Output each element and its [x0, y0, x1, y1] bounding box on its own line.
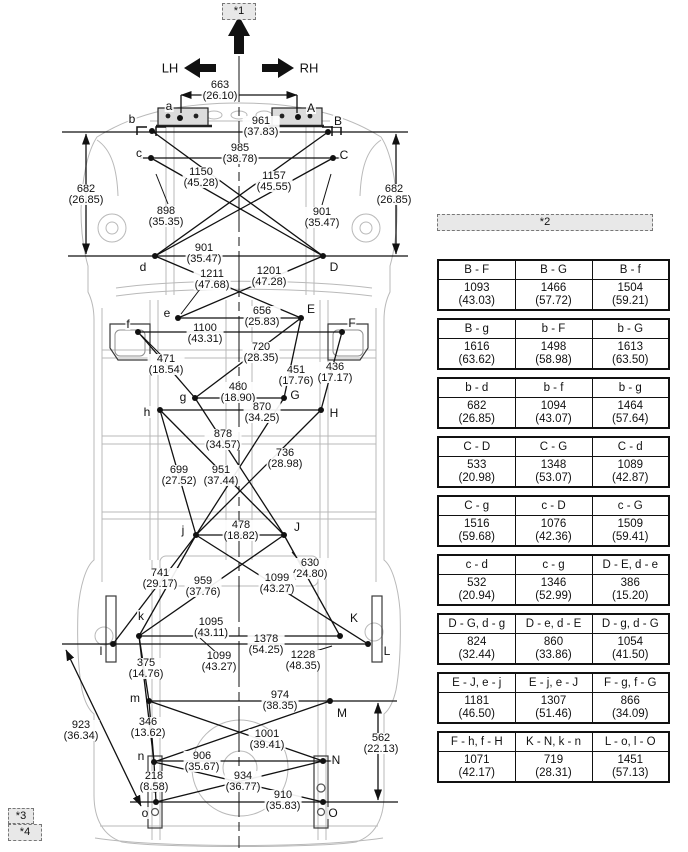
dim-mm: 346: [131, 717, 166, 728]
pair-value-mm: 1181: [439, 695, 515, 708]
point-label-f: f: [125, 318, 130, 330]
pair-header: C - D: [438, 437, 515, 457]
pair-table-block-8: E - J, e - jE - j, e - JF - g, f - G1181…: [437, 672, 670, 724]
dim-label-656: 656(25.83): [244, 306, 281, 327]
dim-inches: (28.35): [244, 353, 279, 364]
point-label-j: j: [181, 524, 186, 536]
pair-header: K - N, k - n: [515, 732, 592, 752]
dim-inches: (17.76): [279, 376, 314, 387]
point-label-D: D: [329, 261, 340, 273]
pair-header: F - h, f - H: [438, 732, 515, 752]
dim-label-934: 934(36.77): [225, 771, 262, 792]
pair-value: 682(26.85): [438, 398, 515, 429]
pair-table-block-3: b - db - fb - g682(26.85)1094(43.07)1464…: [437, 377, 670, 429]
dim-label-682-left: 682(26.85): [68, 184, 105, 205]
pair-value-inches: (20.98): [439, 472, 515, 485]
pair-header: C - d: [592, 437, 669, 457]
dim-mm: 562: [364, 733, 399, 744]
pair-value-mm: 1451: [593, 754, 669, 767]
point-label-A: A: [306, 102, 316, 114]
pair-header: L - o, l - O: [592, 732, 669, 752]
pair-table-block-9: F - h, f - HK - N, k - nL - o, l - O1071…: [437, 731, 670, 783]
dim-label-720: 720(28.35): [243, 342, 280, 363]
dim-label-471: 471(18.54): [148, 354, 185, 375]
pair-header: b - G: [592, 319, 669, 339]
pair-header: B - g: [438, 319, 515, 339]
dim-mm: 901: [187, 243, 222, 254]
pair-value-inches: (43.03): [439, 295, 515, 308]
pair-value: 1464(57.64): [592, 398, 669, 429]
dim-label-1378: 1378(54.25): [248, 634, 285, 655]
dim-label-736: 736(28.98): [267, 448, 304, 469]
pair-value: 533(20.98): [438, 457, 515, 488]
dim-inches: (43.11): [194, 628, 228, 639]
pair-value-inches: (26.85): [439, 413, 515, 426]
dim-label-741: 741(29.17): [142, 568, 179, 589]
pair-value-mm: 533: [439, 459, 515, 472]
reference-box-4: *4: [8, 824, 42, 841]
dim-inches: (14.76): [129, 669, 164, 680]
rh-label: RH: [300, 61, 319, 76]
pair-value-mm: 1076: [516, 518, 592, 531]
dim-mm: 471: [149, 354, 184, 365]
pair-value-mm: 1464: [593, 400, 669, 413]
pair-value: 1076(42.36): [515, 516, 592, 547]
pair-value: 1181(46.50): [438, 693, 515, 724]
dim-inches: (28.98): [268, 459, 303, 470]
pair-table-block-7: D - G, d - gD - e, d - ED - g, d - G824(…: [437, 613, 670, 665]
dim-label-562: 562(22.13): [363, 733, 400, 754]
pair-value: 1094(43.07): [515, 398, 592, 429]
pair-value-mm: 1498: [516, 341, 592, 354]
pair-header: E - j, e - J: [515, 673, 592, 693]
dim-label-1095: 1095(43.11): [193, 617, 229, 638]
dim-label-974: 974(38.35): [262, 690, 299, 711]
pair-value-mm: 1093: [439, 282, 515, 295]
pair-value: 866(34.09): [592, 693, 669, 724]
dim-inches: (38.78): [223, 154, 258, 165]
point-label-J: J: [293, 521, 301, 533]
dim-inches: (35.35): [149, 217, 184, 228]
pair-value-mm: 824: [439, 636, 515, 649]
point-label-a: a: [165, 100, 174, 112]
dim-mm: 1378: [249, 634, 284, 645]
dim-inches: (35.47): [187, 254, 222, 265]
pair-value-mm: 1089: [593, 459, 669, 472]
dim-inches: (24.80): [293, 569, 328, 580]
point-label-G: G: [289, 389, 300, 401]
dim-mm: 959: [186, 576, 221, 587]
pair-value: 1054(41.50): [592, 634, 669, 665]
point-label-l: l: [99, 645, 104, 657]
pair-value-inches: (28.31): [516, 767, 592, 780]
point-label-B: B: [333, 115, 343, 127]
dim-label-1228: 1228(48.35): [285, 650, 322, 671]
dim-mm: 630: [293, 558, 328, 569]
reference-box-1: *1: [222, 3, 256, 20]
dim-label-870: 870(34.25): [244, 402, 281, 423]
dim-mm: 870: [245, 402, 280, 413]
pair-value-mm: 1346: [516, 577, 592, 590]
dim-label-1201: 1201(47.28): [251, 266, 288, 287]
dim-inches: (37.83): [244, 127, 279, 138]
dim-inches: (27.52): [162, 476, 197, 487]
dim-label-1157: 1157(45.55): [256, 171, 293, 192]
dim-mm: 878: [206, 429, 241, 440]
pair-value-mm: 1504: [593, 282, 669, 295]
point-label-m: m: [129, 692, 141, 704]
dim-mm: 451: [279, 365, 314, 376]
dim-inches: (8.58): [140, 782, 169, 793]
dim-inches: (35.83): [266, 801, 301, 812]
pair-value-inches: (59.41): [593, 531, 669, 544]
pair-value: 1613(63.50): [592, 339, 669, 370]
dim-label-1150: 1150(45.28): [183, 167, 220, 188]
dim-inches: (43.27): [202, 662, 237, 673]
point-label-b: b: [128, 113, 137, 125]
pair-value: 1346(52.99): [515, 575, 592, 606]
pair-table-block-5: C - gc - Dc - G1516(59.68)1076(42.36)150…: [437, 495, 670, 547]
dim-mm: 1099: [260, 573, 295, 584]
pair-value-inches: (15.20): [593, 590, 669, 603]
dim-label-630: 630(24.80): [292, 558, 329, 579]
dim-inches: (34.57): [206, 440, 241, 451]
dim-label-961: 961(37.83): [243, 116, 280, 137]
dim-mm: 906: [185, 751, 220, 762]
pair-header: b - f: [515, 378, 592, 398]
dim-label-898: 898(35.35): [148, 206, 185, 227]
dim-mm: 682: [377, 184, 412, 195]
pair-value: 1509(59.41): [592, 516, 669, 547]
pair-value-inches: (57.72): [516, 295, 592, 308]
pair-header: c - D: [515, 496, 592, 516]
pair-value-inches: (32.44): [439, 649, 515, 662]
pair-header: c - g: [515, 555, 592, 575]
dim-label-218: 218(8.58): [139, 771, 170, 792]
dim-inches: (25.83): [245, 317, 280, 328]
dim-mm: 974: [263, 690, 298, 701]
point-label-H: H: [329, 407, 340, 419]
dim-label-1100: 1100(43.31): [187, 323, 224, 344]
pair-value-mm: 1613: [593, 341, 669, 354]
lh-label: LH: [162, 61, 179, 76]
dim-inches: (43.27): [260, 584, 295, 595]
point-label-d: d: [139, 261, 148, 273]
dim-mm: 1099: [202, 651, 237, 662]
dim-inches: (47.28): [252, 277, 287, 288]
pair-value-mm: 719: [516, 754, 592, 767]
dim-inches: (26.85): [69, 195, 104, 206]
dim-mm: 898: [149, 206, 184, 217]
dim-mm: 1100: [188, 323, 223, 334]
pair-value: 1504(59.21): [592, 280, 669, 311]
point-label-O: O: [327, 807, 338, 819]
point-label-C: C: [339, 149, 350, 161]
dim-inches: (36.34): [64, 731, 99, 742]
pair-value-inches: (57.64): [593, 413, 669, 426]
pair-value: 824(32.44): [438, 634, 515, 665]
pair-value-inches: (63.62): [439, 354, 515, 367]
dim-label-901-mid: 901(35.47): [186, 243, 223, 264]
pair-value-mm: 1307: [516, 695, 592, 708]
dim-mm: 682: [69, 184, 104, 195]
dim-inches: (26.85): [377, 195, 412, 206]
pair-value-inches: (41.50): [593, 649, 669, 662]
dim-label-480: 480(18.90): [220, 382, 257, 403]
point-label-n: n: [137, 750, 146, 762]
pair-value-inches: (63.50): [593, 354, 669, 367]
dim-mm: 985: [223, 143, 258, 154]
pair-table-block-4: C - DC - GC - d533(20.98)1348(53.07)1089…: [437, 436, 670, 488]
pair-header: b - d: [438, 378, 515, 398]
pair-value: 1616(63.62): [438, 339, 515, 370]
dim-mm: 1095: [194, 617, 228, 628]
pair-value-inches: (52.99): [516, 590, 592, 603]
pair-value-mm: 532: [439, 577, 515, 590]
dim-mm: 923: [64, 720, 99, 731]
pair-value-mm: 1071: [439, 754, 515, 767]
pair-header: b - g: [592, 378, 669, 398]
pair-value-inches: (59.21): [593, 295, 669, 308]
dim-inches: (34.25): [245, 413, 280, 424]
dim-inches: (45.55): [257, 182, 292, 193]
dim-mm: 1201: [252, 266, 287, 277]
dim-inches: (47.68): [195, 280, 230, 291]
dim-label-699: 699(27.52): [161, 465, 198, 486]
pair-value-inches: (43.07): [516, 413, 592, 426]
pair-table-block-6: c - dc - gD - E, d - e532(20.94)1346(52.…: [437, 554, 670, 606]
pair-table-block-2: B - gb - Fb - G1616(63.62)1498(58.98)161…: [437, 318, 670, 370]
point-label-K: K: [349, 612, 359, 624]
dim-mm: 436: [318, 362, 353, 373]
dim-label-923: 923(36.34): [63, 720, 100, 741]
dim-mm: 663: [203, 80, 238, 91]
dim-inches: (45.28): [184, 178, 219, 189]
dim-label-910: 910(35.83): [265, 790, 302, 811]
point-label-e: e: [163, 307, 172, 319]
dim-label-985: 985(38.78): [222, 143, 259, 164]
dim-mm: 1157: [257, 171, 292, 182]
pair-value: 1466(57.72): [515, 280, 592, 311]
dim-inches: (13.62): [131, 728, 166, 739]
pair-value-mm: 860: [516, 636, 592, 649]
pair-value: 1071(42.17): [438, 752, 515, 783]
point-label-h: h: [143, 406, 152, 418]
pair-value-inches: (57.13): [593, 767, 669, 780]
pair-value-inches: (20.94): [439, 590, 515, 603]
pair-header: c - G: [592, 496, 669, 516]
point-label-F: F: [347, 317, 356, 329]
pair-value-mm: 1509: [593, 518, 669, 531]
dimension-pair-table: B - FB - GB - f1093(43.03)1466(57.72)150…: [437, 259, 670, 790]
pair-value-inches: (51.46): [516, 708, 592, 721]
dim-inches: (54.25): [249, 645, 284, 656]
pair-header: C - g: [438, 496, 515, 516]
point-label-N: N: [331, 754, 342, 766]
dim-mm: 375: [129, 658, 164, 669]
dim-mm: 1211: [195, 269, 230, 280]
pair-value-inches: (53.07): [516, 472, 592, 485]
dim-label-901-right: 901(35.47): [304, 207, 341, 228]
pair-header: E - J, e - j: [438, 673, 515, 693]
pair-value-mm: 1616: [439, 341, 515, 354]
point-label-k: k: [137, 610, 145, 622]
dim-inches: (22.13): [364, 744, 399, 755]
pair-value: 386(15.20): [592, 575, 669, 606]
pair-header: D - G, d - g: [438, 614, 515, 634]
reference-box-2: *2: [437, 214, 653, 231]
dim-inches: (36.77): [226, 782, 261, 793]
dim-mm: 910: [266, 790, 301, 801]
dim-label-663: 663(26.10): [202, 80, 239, 101]
pair-header: F - g, f - G: [592, 673, 669, 693]
dim-inches: (17.17): [318, 373, 353, 384]
pair-value: 1516(59.68): [438, 516, 515, 547]
dim-mm: 901: [305, 207, 340, 218]
pair-value: 1451(57.13): [592, 752, 669, 783]
dim-inches: (26.10): [203, 91, 238, 102]
dim-mm: 741: [143, 568, 178, 579]
pair-value: 1089(42.87): [592, 457, 669, 488]
dim-inches: (18.82): [224, 531, 259, 542]
pair-value-inches: (59.68): [439, 531, 515, 544]
point-label-L: L: [383, 645, 392, 657]
pair-value-inches: (46.50): [439, 708, 515, 721]
pair-value-mm: 1466: [516, 282, 592, 295]
dim-inches: (37.76): [186, 587, 221, 598]
pair-value-mm: 682: [439, 400, 515, 413]
pair-header: C - G: [515, 437, 592, 457]
dim-label-878: 878(34.57): [205, 429, 242, 450]
reference-box-3: *3: [8, 808, 34, 824]
pair-value-inches: (34.09): [593, 708, 669, 721]
dim-label-906: 906(35.67): [184, 751, 221, 772]
dim-inches: (38.35): [263, 701, 298, 712]
dim-mm: 934: [226, 771, 261, 782]
dim-label-959: 959(37.76): [185, 576, 222, 597]
dim-inches: (18.54): [149, 365, 184, 376]
dim-mm: 478: [224, 520, 259, 531]
dim-inches: (35.67): [185, 762, 220, 773]
pair-value: 1348(53.07): [515, 457, 592, 488]
dim-mm: 736: [268, 448, 303, 459]
dim-inches: (37.44): [204, 476, 239, 487]
dim-label-478: 478(18.82): [223, 520, 260, 541]
pair-value-mm: 866: [593, 695, 669, 708]
dim-label-1099-upper: 1099(43.27): [259, 573, 296, 594]
pair-header: B - F: [438, 260, 515, 280]
dim-mm: 951: [204, 465, 239, 476]
pair-value-mm: 1094: [516, 400, 592, 413]
dim-mm: 218: [140, 771, 169, 782]
pair-value: 719(28.31): [515, 752, 592, 783]
pair-value-mm: 386: [593, 577, 669, 590]
pair-value-mm: 1054: [593, 636, 669, 649]
dim-label-436: 436(17.17): [317, 362, 354, 383]
pair-value-inches: (42.87): [593, 472, 669, 485]
dim-mm: 961: [244, 116, 279, 127]
dim-inches: (48.35): [286, 661, 321, 672]
dim-label-682-right: 682(26.85): [376, 184, 413, 205]
pair-header: B - G: [515, 260, 592, 280]
dim-mm: 656: [245, 306, 280, 317]
pair-header: B - f: [592, 260, 669, 280]
dim-inches: (43.31): [188, 334, 223, 345]
pair-value: 532(20.94): [438, 575, 515, 606]
dim-mm: 1150: [184, 167, 219, 178]
pair-value: 1093(43.03): [438, 280, 515, 311]
pair-value: 860(33.86): [515, 634, 592, 665]
dim-label-1001: 1001(39.41): [249, 729, 286, 750]
dim-label-951: 951(37.44): [203, 465, 240, 486]
dim-label-1099-lower: 1099(43.27): [201, 651, 238, 672]
dim-inches: (35.47): [305, 218, 340, 229]
pair-value: 1498(58.98): [515, 339, 592, 370]
point-label-c: c: [135, 147, 143, 159]
pair-value-inches: (42.17): [439, 767, 515, 780]
dim-label-451: 451(17.76): [278, 365, 315, 386]
dim-mm: 699: [162, 465, 197, 476]
dim-label-1211: 1211(47.68): [194, 269, 231, 290]
pair-header: D - e, d - E: [515, 614, 592, 634]
pair-value-mm: 1348: [516, 459, 592, 472]
point-label-M: M: [336, 707, 348, 719]
pair-value-inches: (33.86): [516, 649, 592, 662]
pair-value-mm: 1516: [439, 518, 515, 531]
pair-value: 1307(51.46): [515, 693, 592, 724]
pair-header: b - F: [515, 319, 592, 339]
pair-value-inches: (58.98): [516, 354, 592, 367]
dim-mm: 1228: [286, 650, 321, 661]
dim-mm: 480: [221, 382, 256, 393]
point-label-g: g: [179, 391, 188, 403]
dim-label-375: 375(14.76): [128, 658, 165, 679]
dim-inches: (39.41): [250, 740, 285, 751]
pair-header: D - g, d - G: [592, 614, 669, 634]
dim-mm: 720: [244, 342, 279, 353]
pair-value-inches: (42.36): [516, 531, 592, 544]
point-label-o: o: [141, 807, 150, 819]
body-dimensions-page: aAbBcCdDeEfFgGhHjJkKlLmMnNoO663(26.10)96…: [0, 0, 688, 852]
point-label-E: E: [306, 303, 316, 315]
pair-table-block-1: B - FB - GB - f1093(43.03)1466(57.72)150…: [437, 259, 670, 311]
dim-mm: 1001: [250, 729, 285, 740]
pair-header: D - E, d - e: [592, 555, 669, 575]
dim-inches: (29.17): [143, 579, 178, 590]
pair-header: c - d: [438, 555, 515, 575]
dim-label-346: 346(13.62): [130, 717, 167, 738]
